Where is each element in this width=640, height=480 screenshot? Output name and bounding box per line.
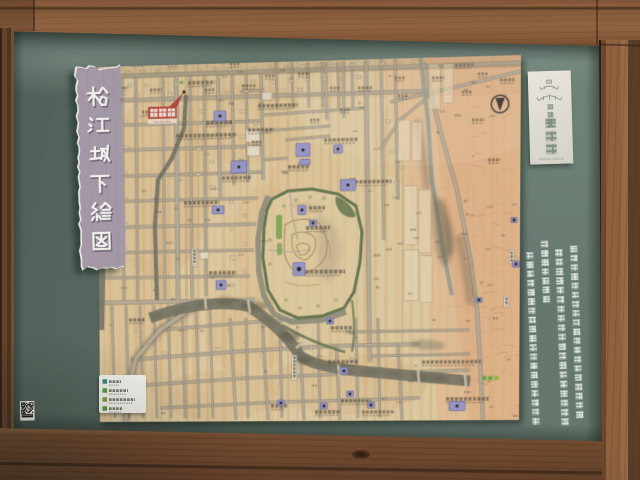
svg-text:MATSUE CASTLE: MATSUE CASTLE (539, 157, 564, 162)
